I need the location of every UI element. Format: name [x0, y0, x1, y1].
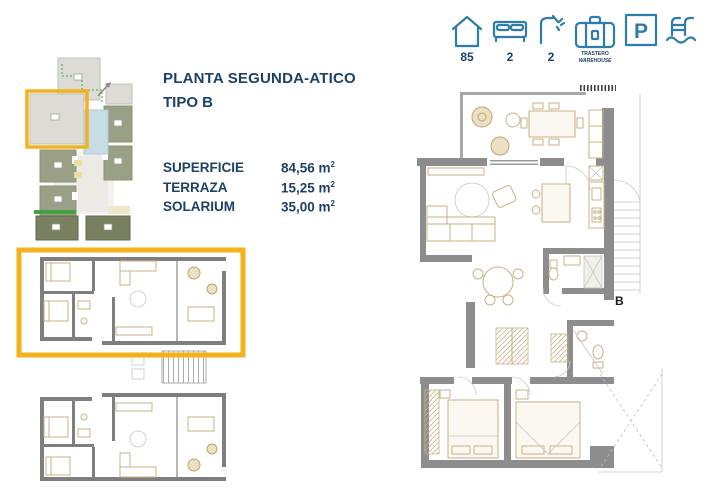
shower-icon [536, 13, 566, 49]
apartment-unit [40, 257, 226, 345]
spec-value: 35,00 m2 [281, 199, 335, 215]
title-block: PLANTA SEGUNDA-ATICO TIPO B [163, 70, 356, 111]
dimension-annotation [580, 85, 616, 91]
bathroom-2 [567, 320, 614, 374]
spec-row-superficie: SUPERFICIE 84,56 m2 [163, 160, 335, 176]
hall-closets [496, 328, 568, 364]
svg-text:P: P [634, 20, 648, 43]
spec-row-solarium: SOLARIUM 35,00 m2 [163, 199, 335, 215]
amenity-bar: 85 2 2 [450, 13, 699, 64]
site-plan-drawing [18, 56, 133, 242]
solarium-outline [598, 369, 662, 472]
page-title: PLANTA SEGUNDA-ATICO [163, 70, 356, 87]
overview-floor-plan [16, 247, 246, 491]
bed-icon [491, 13, 529, 49]
amenity-pool [665, 13, 699, 49]
spec-table: SUPERFICIE 84,56 m2 TERRAZA 15,25 m2 SOL… [163, 160, 335, 219]
overview-plan-drawing [16, 247, 246, 491]
brochure-page: 85 2 2 [0, 0, 705, 498]
bedroom-1 [425, 390, 498, 458]
staircase [614, 94, 640, 294]
page-subtitle: TIPO B [163, 94, 356, 111]
site-plan [18, 56, 133, 242]
surface-value: 85 [460, 51, 473, 63]
amenity-bedrooms: 2 [491, 13, 529, 63]
bedrooms-value: 2 [507, 51, 514, 63]
bathroom-1 [549, 256, 602, 288]
spec-label: SUPERFICIE [163, 160, 244, 176]
detail-plan-drawing [412, 84, 704, 496]
spec-label: SOLARIUM [163, 199, 235, 215]
storage-label: TRASTERO WAREHOUSE [579, 51, 612, 64]
amenity-parking: P [624, 13, 658, 49]
terrace [460, 85, 616, 162]
detail-floor-plan: B [412, 84, 704, 496]
bathrooms-value: 2 [548, 51, 555, 63]
spec-value: 84,56 m2 [281, 160, 335, 176]
amenity-storage: TRASTERO WAREHOUSE [573, 13, 617, 64]
spec-label: TERRAZA [163, 180, 228, 196]
unit-letter-label: B [615, 294, 624, 308]
house-icon [450, 13, 484, 49]
spec-value: 15,25 m2 [281, 180, 335, 196]
amenity-surface: 85 [450, 13, 484, 63]
amenity-bathrooms: 2 [536, 13, 566, 63]
parking-icon: P [624, 13, 658, 49]
spec-row-terraza: TERRAZA 15,25 m2 [163, 180, 335, 196]
bedroom-2 [516, 390, 580, 458]
living-room [427, 168, 523, 305]
storage-icon [573, 13, 617, 49]
pool-ladder-icon [665, 13, 699, 49]
